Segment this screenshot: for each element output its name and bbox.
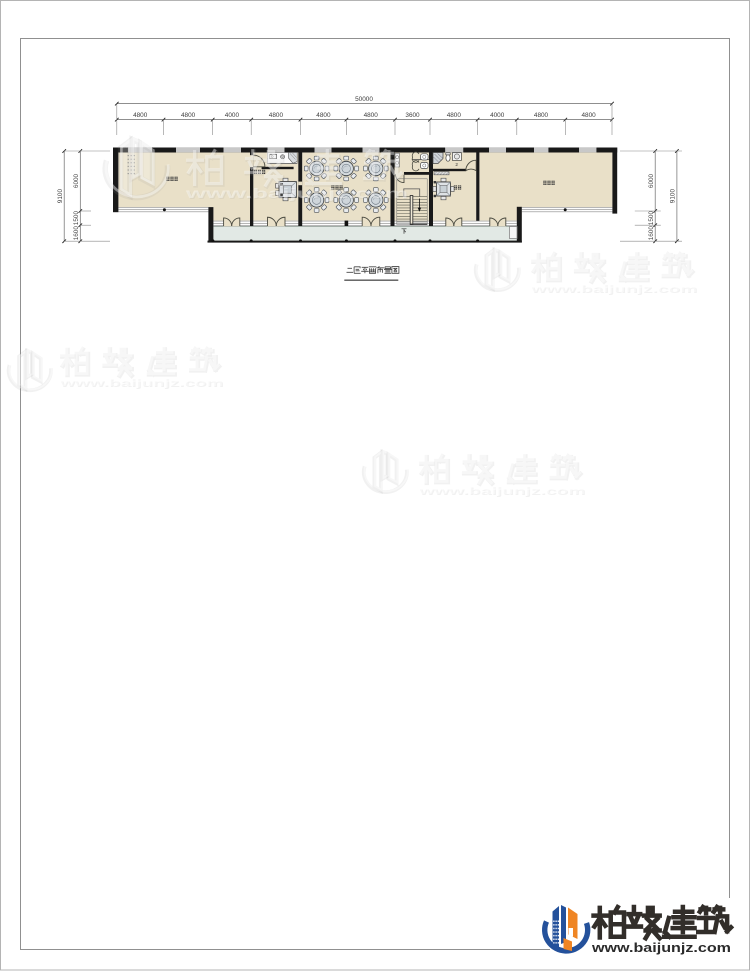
- svg-text:4800: 4800: [534, 112, 549, 119]
- svg-text:50000: 50000: [355, 96, 373, 103]
- svg-text:9100: 9100: [57, 189, 64, 204]
- svg-text:4800: 4800: [364, 112, 379, 119]
- svg-text:4800: 4800: [181, 112, 196, 119]
- svg-text:4000: 4000: [225, 112, 240, 119]
- svg-text:www.baijunjz.com: www.baijunjz.com: [529, 283, 697, 295]
- svg-text:4800: 4800: [447, 112, 462, 119]
- svg-text:1600: 1600: [648, 226, 655, 241]
- svg-text:3600: 3600: [405, 112, 420, 119]
- svg-text:www.baijunjz.com: www.baijunjz.com: [417, 485, 585, 497]
- svg-text:4800: 4800: [316, 112, 331, 119]
- svg-text:www.baijunjz.com: www.baijunjz.com: [591, 940, 731, 955]
- svg-text:4800: 4800: [133, 112, 148, 119]
- svg-text:1600: 1600: [73, 226, 80, 241]
- svg-text:www.baijunjz.com: www.baijunjz.com: [58, 377, 223, 389]
- svg-text:6000: 6000: [648, 173, 655, 188]
- svg-text:1500: 1500: [73, 211, 80, 226]
- svg-text:4800: 4800: [269, 112, 284, 119]
- svg-text:4800: 4800: [581, 112, 596, 119]
- svg-text:1500: 1500: [648, 211, 655, 226]
- svg-text:2: 2: [455, 162, 458, 167]
- svg-text:9100: 9100: [670, 189, 677, 204]
- svg-text:www.baijunjz.com: www.baijunjz.com: [184, 186, 408, 201]
- svg-text:4000: 4000: [490, 112, 505, 119]
- svg-text:6000: 6000: [73, 173, 80, 188]
